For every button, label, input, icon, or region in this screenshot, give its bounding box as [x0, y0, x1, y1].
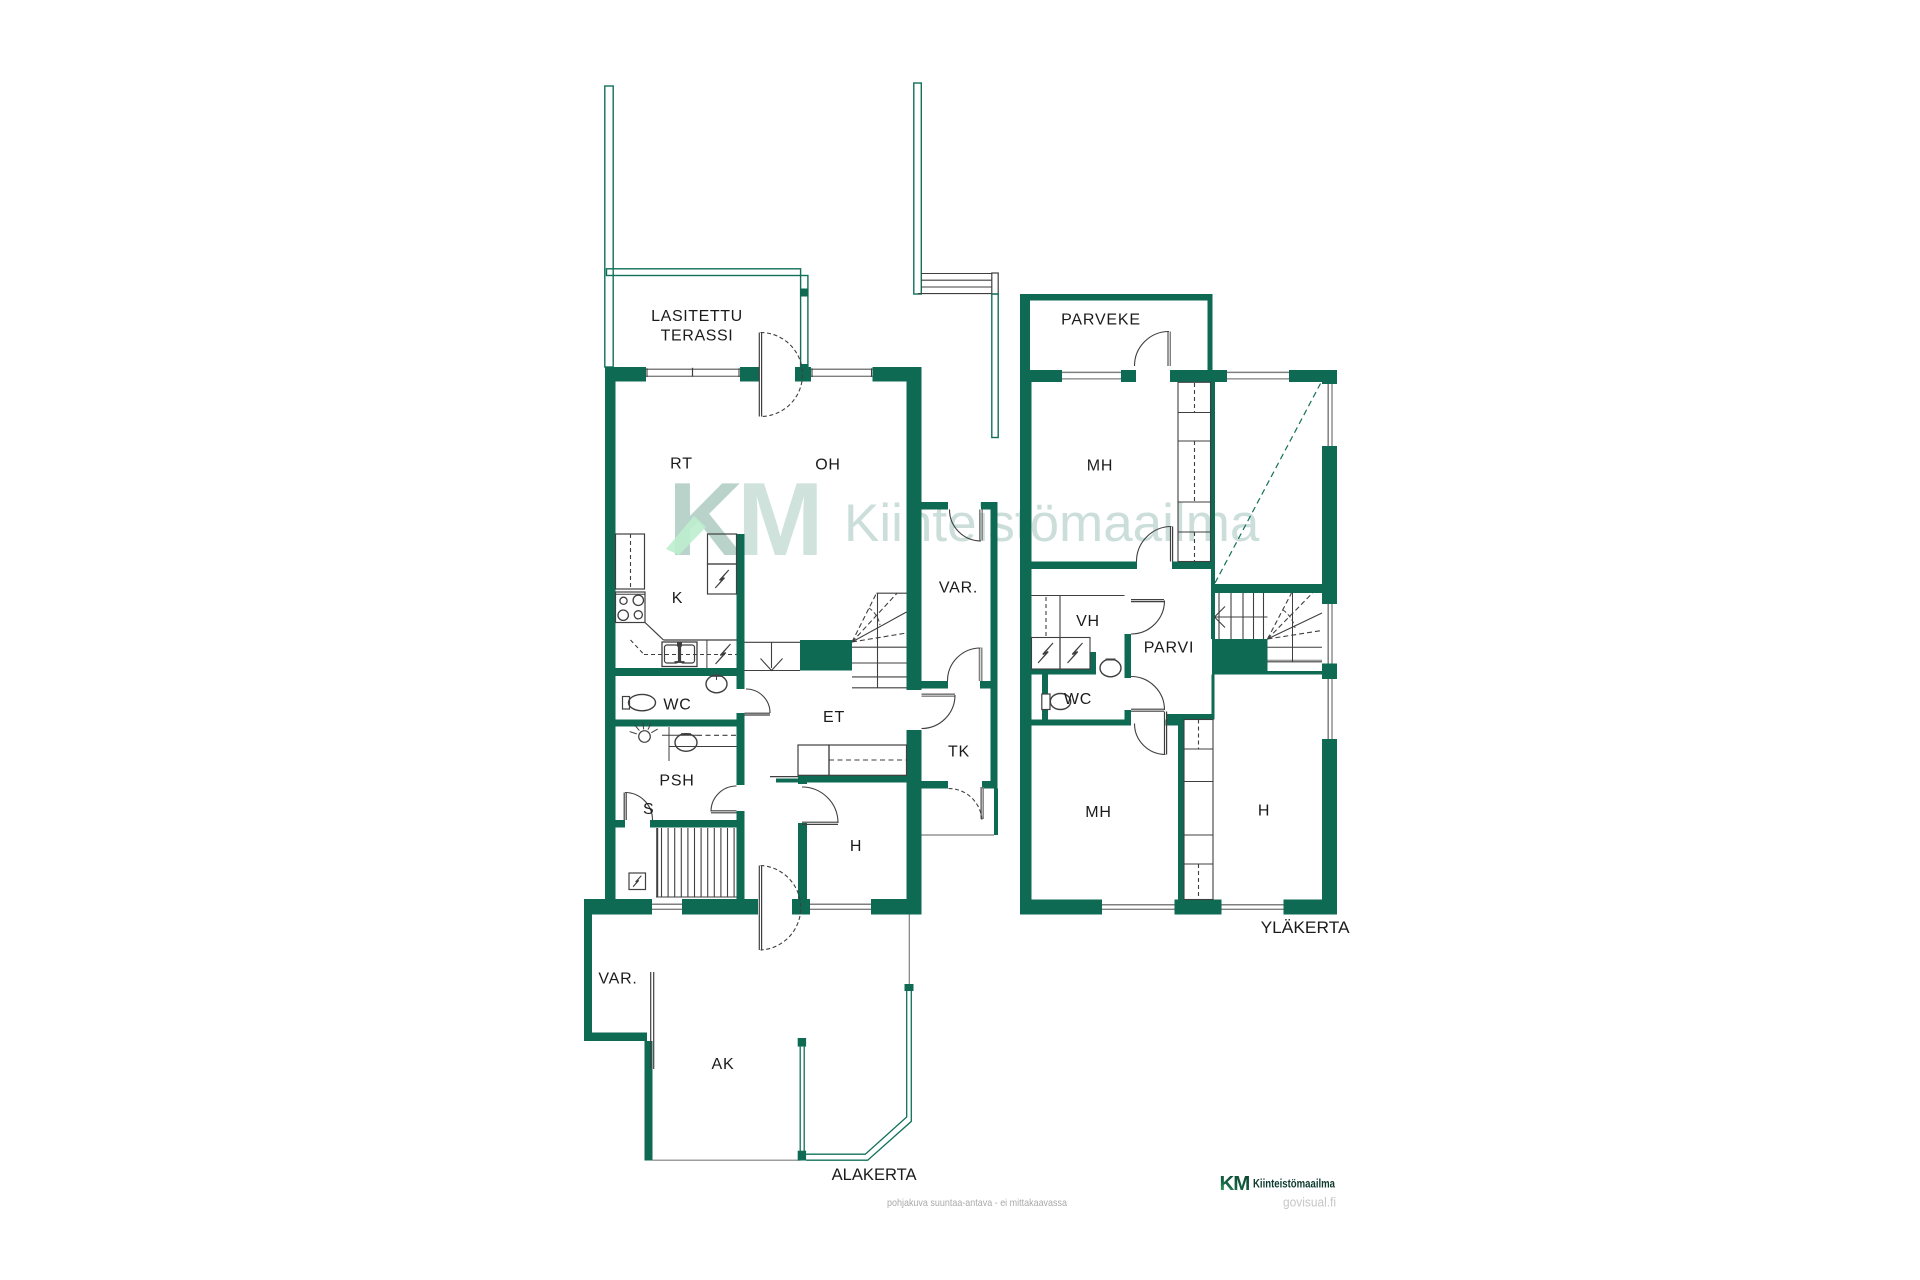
svg-text:M: M — [737, 462, 824, 578]
svg-text:ET: ET — [823, 709, 845, 726]
svg-text:Kiinteistömaailma: Kiinteistömaailma — [1253, 1179, 1336, 1191]
svg-text:govisual.fi: govisual.fi — [1283, 1195, 1336, 1210]
svg-text:H: H — [850, 838, 862, 855]
svg-text:MH: MH — [1085, 804, 1111, 821]
svg-text:PARVEKE: PARVEKE — [1061, 312, 1141, 329]
svg-text:KM: KM — [1220, 1172, 1250, 1195]
svg-text:VAR.: VAR. — [598, 970, 637, 987]
svg-text:Kiinteistömaailma: Kiinteistömaailma — [844, 494, 1260, 553]
svg-text:RT: RT — [670, 456, 693, 473]
svg-text:MH: MH — [1087, 458, 1113, 475]
svg-text:TERASSI: TERASSI — [661, 328, 734, 345]
svg-text:VAR.: VAR. — [939, 580, 978, 597]
svg-text:VH: VH — [1076, 613, 1100, 630]
svg-text:PSH: PSH — [659, 773, 694, 790]
svg-text:S: S — [643, 801, 654, 818]
svg-text:PARVI: PARVI — [1144, 640, 1195, 657]
svg-text:ALAKERTA: ALAKERTA — [832, 1166, 917, 1184]
svg-text:WC: WC — [1064, 691, 1092, 708]
svg-text:YLÄKERTA: YLÄKERTA — [1261, 919, 1350, 937]
svg-text:WC: WC — [663, 697, 691, 714]
svg-text:TK: TK — [948, 744, 970, 761]
svg-text:AK: AK — [712, 1056, 735, 1073]
svg-text:H: H — [1258, 803, 1270, 820]
svg-text:OH: OH — [815, 457, 841, 474]
svg-text:pohjakuva suuntaa-antava - ei: pohjakuva suuntaa-antava - ei mittakaava… — [887, 1197, 1067, 1209]
svg-text:LASITETTU: LASITETTU — [651, 308, 743, 325]
svg-text:K: K — [668, 462, 743, 578]
svg-text:K: K — [672, 590, 683, 607]
